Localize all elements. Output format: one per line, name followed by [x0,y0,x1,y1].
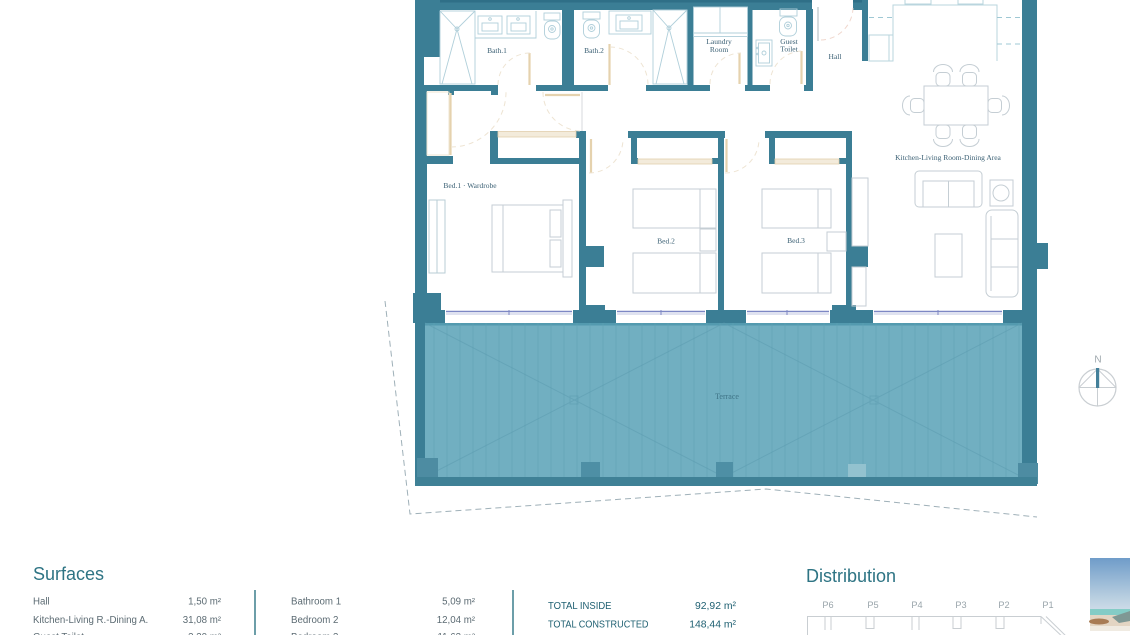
svg-text:Hall: Hall [33,597,50,608]
svg-text:Bedroom 2: Bedroom 2 [291,615,338,626]
svg-text:Room: Room [710,45,729,54]
svg-text:Distribution: Distribution [806,566,896,586]
svg-text:P6: P6 [822,600,833,610]
svg-text:P4: P4 [911,600,922,610]
svg-text:P1: P1 [1042,600,1053,610]
svg-text:P2: P2 [998,600,1009,610]
svg-text:TOTAL CONSTRUCTED: TOTAL CONSTRUCTED [548,620,649,631]
svg-text:Bed.2: Bed.2 [657,237,675,246]
svg-text:P5: P5 [867,600,878,610]
svg-text:Bath.2: Bath.2 [584,46,604,55]
svg-text:Kitchen-Living R.-Dining A.: Kitchen-Living R.-Dining A. [33,615,148,626]
svg-text:Terrace: Terrace [715,392,739,401]
svg-text:Toilet: Toilet [780,45,798,54]
svg-text:148,44 m²: 148,44 m² [689,620,736,631]
svg-text:Surfaces: Surfaces [33,564,104,584]
svg-text:Bath.1: Bath.1 [487,46,507,55]
svg-text:5,09 m²: 5,09 m² [442,597,476,608]
svg-text:Bed.1 · Wardrobe: Bed.1 · Wardrobe [443,181,497,190]
svg-text:TOTAL INSIDE: TOTAL INSIDE [548,601,612,612]
svg-text:1,50 m²: 1,50 m² [188,597,222,608]
svg-text:Hall: Hall [829,52,842,61]
svg-text:31,08 m²: 31,08 m² [183,615,222,626]
svg-text:12,04 m²: 12,04 m² [437,615,476,626]
svg-text:P3: P3 [955,600,966,610]
svg-text:Kitchen-Living Room-Dining Are: Kitchen-Living Room-Dining Area [895,153,1001,162]
svg-text:Bathroom 1: Bathroom 1 [291,597,341,608]
svg-text:Bed.3: Bed.3 [787,236,805,245]
svg-text:N: N [1094,355,1101,366]
svg-text:92,92 m²: 92,92 m² [695,601,737,612]
